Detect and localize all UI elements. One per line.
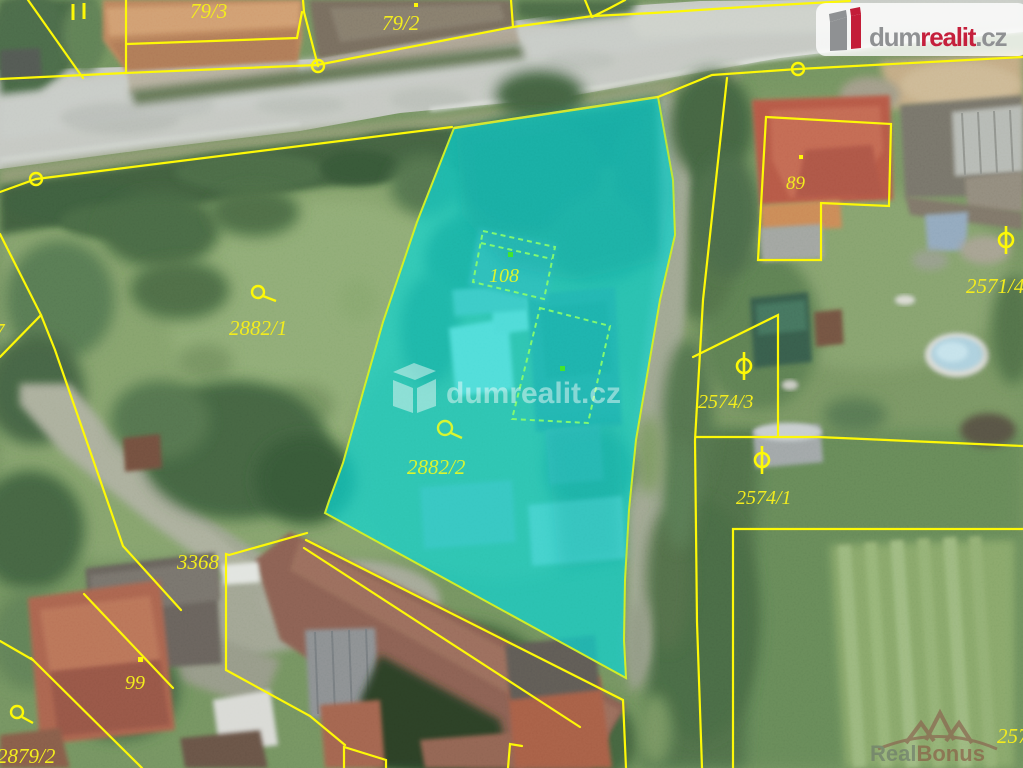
svg-text:2882/1: 2882/1 <box>229 316 287 340</box>
svg-text:2571/4: 2571/4 <box>966 274 1023 298</box>
svg-text:99: 99 <box>125 672 145 694</box>
svg-text:2882/2: 2882/2 <box>407 455 466 479</box>
svg-text:257: 257 <box>997 724 1023 748</box>
svg-text:RealBonus: RealBonus <box>870 741 985 766</box>
svg-text:dumrealit.cz: dumrealit.cz <box>446 377 621 410</box>
svg-text:89: 89 <box>786 173 806 194</box>
svg-text:108: 108 <box>489 265 519 287</box>
svg-text:2879/2: 2879/2 <box>0 744 56 768</box>
svg-text:2574/1: 2574/1 <box>736 487 792 509</box>
svg-text:79/2: 79/2 <box>382 11 420 35</box>
svg-text:dumrealit.cz: dumrealit.cz <box>869 22 1008 52</box>
svg-text:3368: 3368 <box>176 550 220 574</box>
svg-text:79/3: 79/3 <box>190 0 227 23</box>
svg-text:2574/3: 2574/3 <box>698 391 754 413</box>
